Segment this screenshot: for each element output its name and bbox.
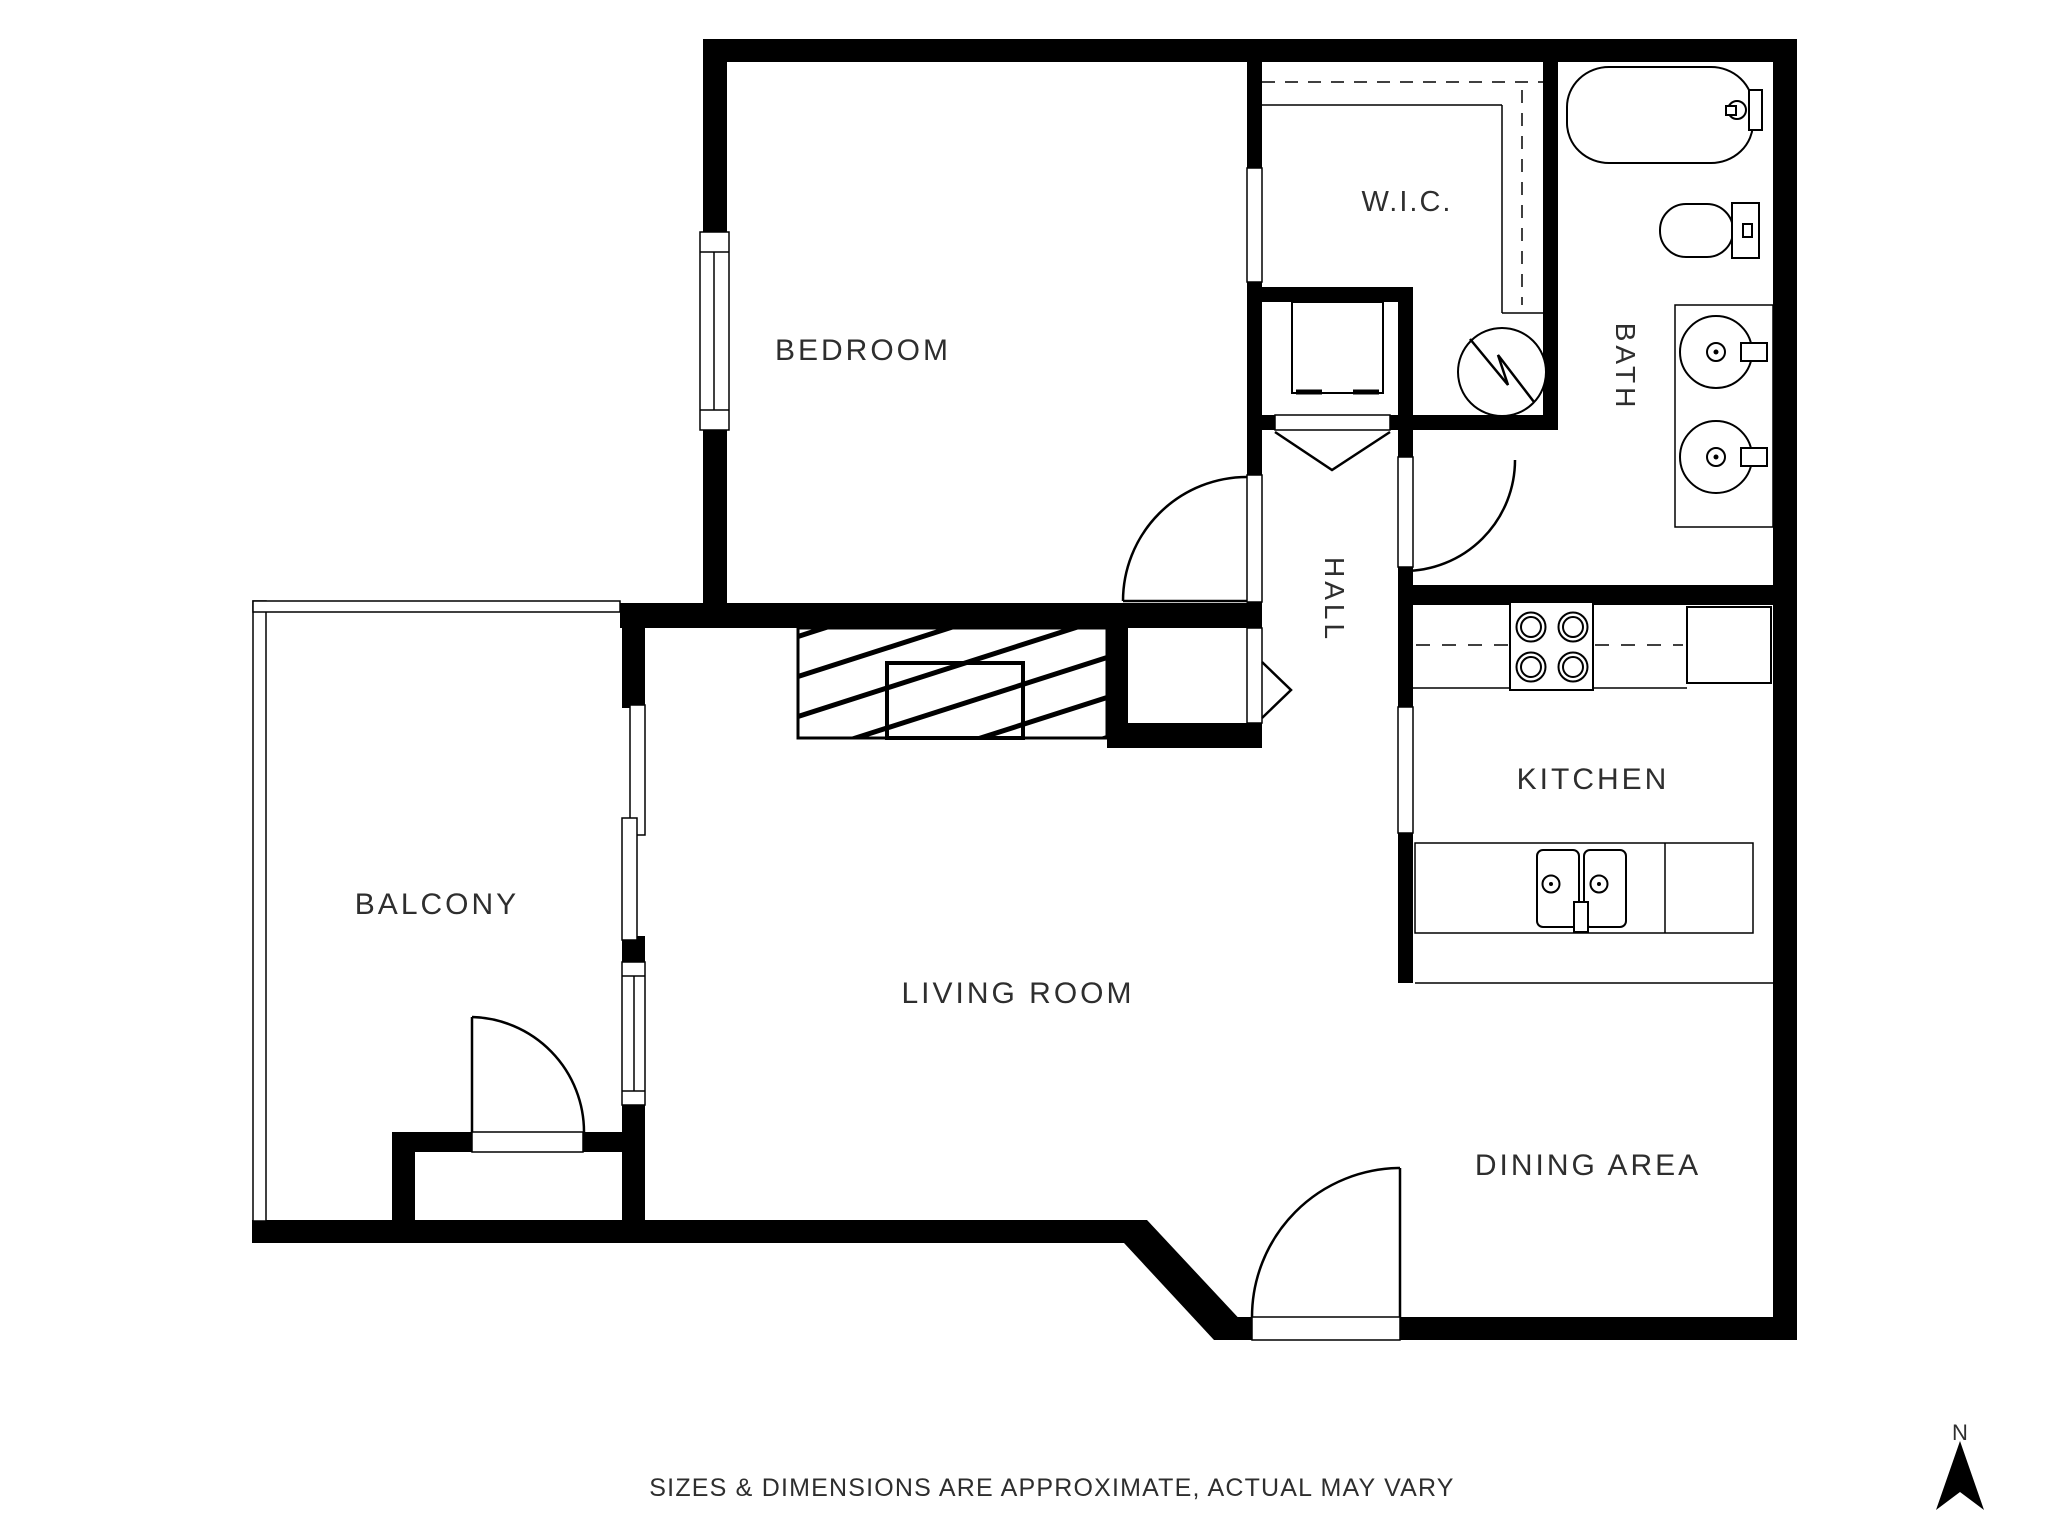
kitchen-entry-opening [1398,707,1413,833]
kitchen-island [1415,843,1753,933]
wall-segment [1773,39,1797,1340]
wic-label: W.I.C. [1362,186,1453,218]
north-arrow-icon: N [1936,1420,1984,1510]
bath-fixtures [1567,67,1773,527]
fireplace-icon [790,535,1115,839]
wall-segment [1398,287,1413,430]
living-window-icon-upper [630,705,645,835]
wall-segment [1247,62,1262,168]
bedroom-label: BEDROOM [775,334,951,367]
living-window-icon-lower [622,962,645,1105]
water-heater-icon [1458,328,1546,416]
laundry-closet-unit-icon [1292,302,1383,393]
dining-area-label: DINING AREA [1475,1149,1701,1182]
wall-segment [1250,415,1275,430]
stove-4-burner-icon [1510,602,1593,690]
entry-door-threshold [1252,1317,1400,1340]
double-kitchen-sink-icon [1537,850,1626,932]
wall-segment [1398,430,1413,457]
wall-segment [1247,602,1262,628]
bath-door-icon [1404,460,1515,571]
bathtub-icon [1567,67,1762,163]
bath-door-leaf [1398,457,1413,567]
balcony-door-threshold [472,1132,583,1152]
balcony-railing-left [253,601,266,1221]
disclaimer-text: SIZES & DIMENSIONS ARE APPROXIMATE, ACTU… [649,1474,1454,1502]
wall-segment [1413,585,1797,605]
wall-segment [1398,567,1413,605]
wall-segment [1390,415,1558,430]
hall-label: HALL [1319,557,1350,643]
wall-segment [1400,1317,1797,1340]
wall-segment [1107,723,1262,748]
wic-entry-opening [1247,168,1262,282]
refrigerator-icon [1687,607,1771,683]
wall-segment-diagonal [1124,1220,1246,1340]
wall-segment [620,603,1262,628]
balcony-railing-top [253,601,620,612]
wall-segment [1262,287,1413,302]
kitchen-label: KITCHEN [1517,763,1670,796]
toilet-icon [1660,203,1759,258]
wall-segment [1398,833,1413,983]
double-vanity-sink-icon [1675,305,1773,527]
living-window-icon-middle [622,818,637,940]
floorplan-drawing: BEDROOM W.I.C. BATH HALL KITCHEN BALCONY… [0,0,2048,1536]
wall-segment [703,39,727,232]
living-room-label: LIVING ROOM [901,977,1134,1010]
laundry-nook-chevron [1275,432,1390,470]
wall-segment [703,39,1797,62]
balcony-label: BALCONY [355,888,519,921]
hall-closet-opening [1247,628,1262,723]
laundry-nook-opening [1275,415,1390,430]
bath-label: BATH [1610,323,1641,412]
bedroom-window-icon [700,232,729,430]
wall-segment [252,1220,1147,1243]
floorplan-page: BEDROOM W.I.C. BATH HALL KITCHEN BALCONY… [0,0,2048,1536]
entry-door-icon [1252,1168,1400,1317]
hall-closet-chevron [1262,662,1291,718]
wall-segment [1398,605,1413,707]
wall-segment [703,430,727,628]
bedroom-door-icon [1123,477,1247,601]
balcony-door-icon [472,1017,584,1132]
bedroom-door-jamb [1247,475,1262,602]
wall-segment [1247,282,1262,475]
wall-segment [1237,1317,1252,1340]
wall-segment [622,603,645,708]
